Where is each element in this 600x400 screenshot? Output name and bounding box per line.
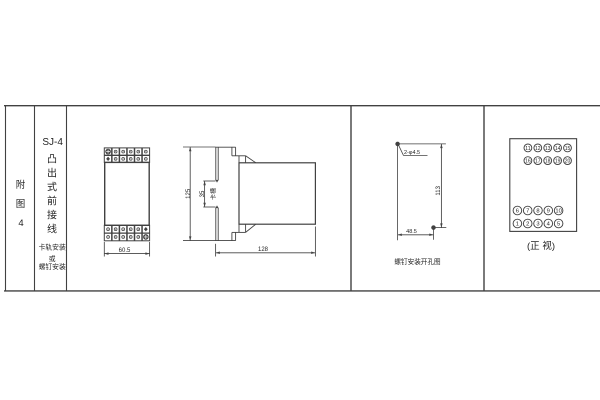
- svg-text:17: 17: [535, 159, 541, 165]
- svg-text:11: 11: [525, 146, 530, 152]
- svg-text:9: 9: [547, 208, 550, 214]
- svg-text:凸: 凸: [47, 153, 57, 165]
- svg-text:2-φ4.5: 2-φ4.5: [404, 150, 420, 156]
- svg-text:128: 128: [258, 247, 269, 253]
- svg-text:13: 13: [545, 146, 551, 152]
- svg-text:113: 113: [436, 185, 442, 195]
- svg-text:1: 1: [516, 221, 519, 227]
- svg-text:12: 12: [535, 146, 541, 152]
- svg-text:螺钉安装: 螺钉安装: [39, 262, 66, 271]
- svg-text:卡轨安装: 卡轨安装: [39, 243, 66, 252]
- svg-text:式: 式: [47, 180, 57, 193]
- svg-text:60.5: 60.5: [119, 248, 131, 254]
- svg-text:15: 15: [565, 146, 571, 152]
- svg-text:4: 4: [18, 218, 23, 229]
- svg-text:线: 线: [47, 222, 57, 235]
- svg-text:35: 35: [200, 190, 206, 197]
- svg-text:螺钉安装开孔图: 螺钉安装开孔图: [394, 257, 441, 266]
- svg-text:8: 8: [536, 208, 539, 214]
- svg-text:5: 5: [557, 221, 560, 227]
- svg-text:6: 6: [516, 208, 519, 214]
- svg-text:卡槽: 卡槽: [209, 188, 217, 200]
- svg-text:接: 接: [47, 208, 57, 221]
- svg-text:16: 16: [525, 159, 531, 165]
- svg-text:2: 2: [526, 221, 529, 227]
- svg-text:18: 18: [545, 159, 551, 165]
- svg-text:4: 4: [547, 221, 551, 227]
- svg-text:14: 14: [555, 146, 561, 152]
- svg-text:前: 前: [47, 194, 57, 207]
- svg-text:或: 或: [49, 254, 56, 263]
- svg-text:125: 125: [186, 188, 192, 199]
- svg-text:图: 图: [16, 199, 26, 210]
- svg-text:3: 3: [536, 221, 539, 227]
- svg-text:48.5: 48.5: [406, 229, 417, 235]
- svg-text:出: 出: [47, 166, 57, 179]
- svg-text:SJ-4: SJ-4: [42, 137, 63, 148]
- svg-text:附: 附: [16, 179, 26, 191]
- svg-text:10: 10: [555, 208, 561, 214]
- svg-text:20: 20: [565, 159, 571, 165]
- svg-text:19: 19: [555, 159, 561, 165]
- svg-text:(正 视): (正 视): [527, 240, 555, 252]
- svg-text:7: 7: [526, 208, 529, 214]
